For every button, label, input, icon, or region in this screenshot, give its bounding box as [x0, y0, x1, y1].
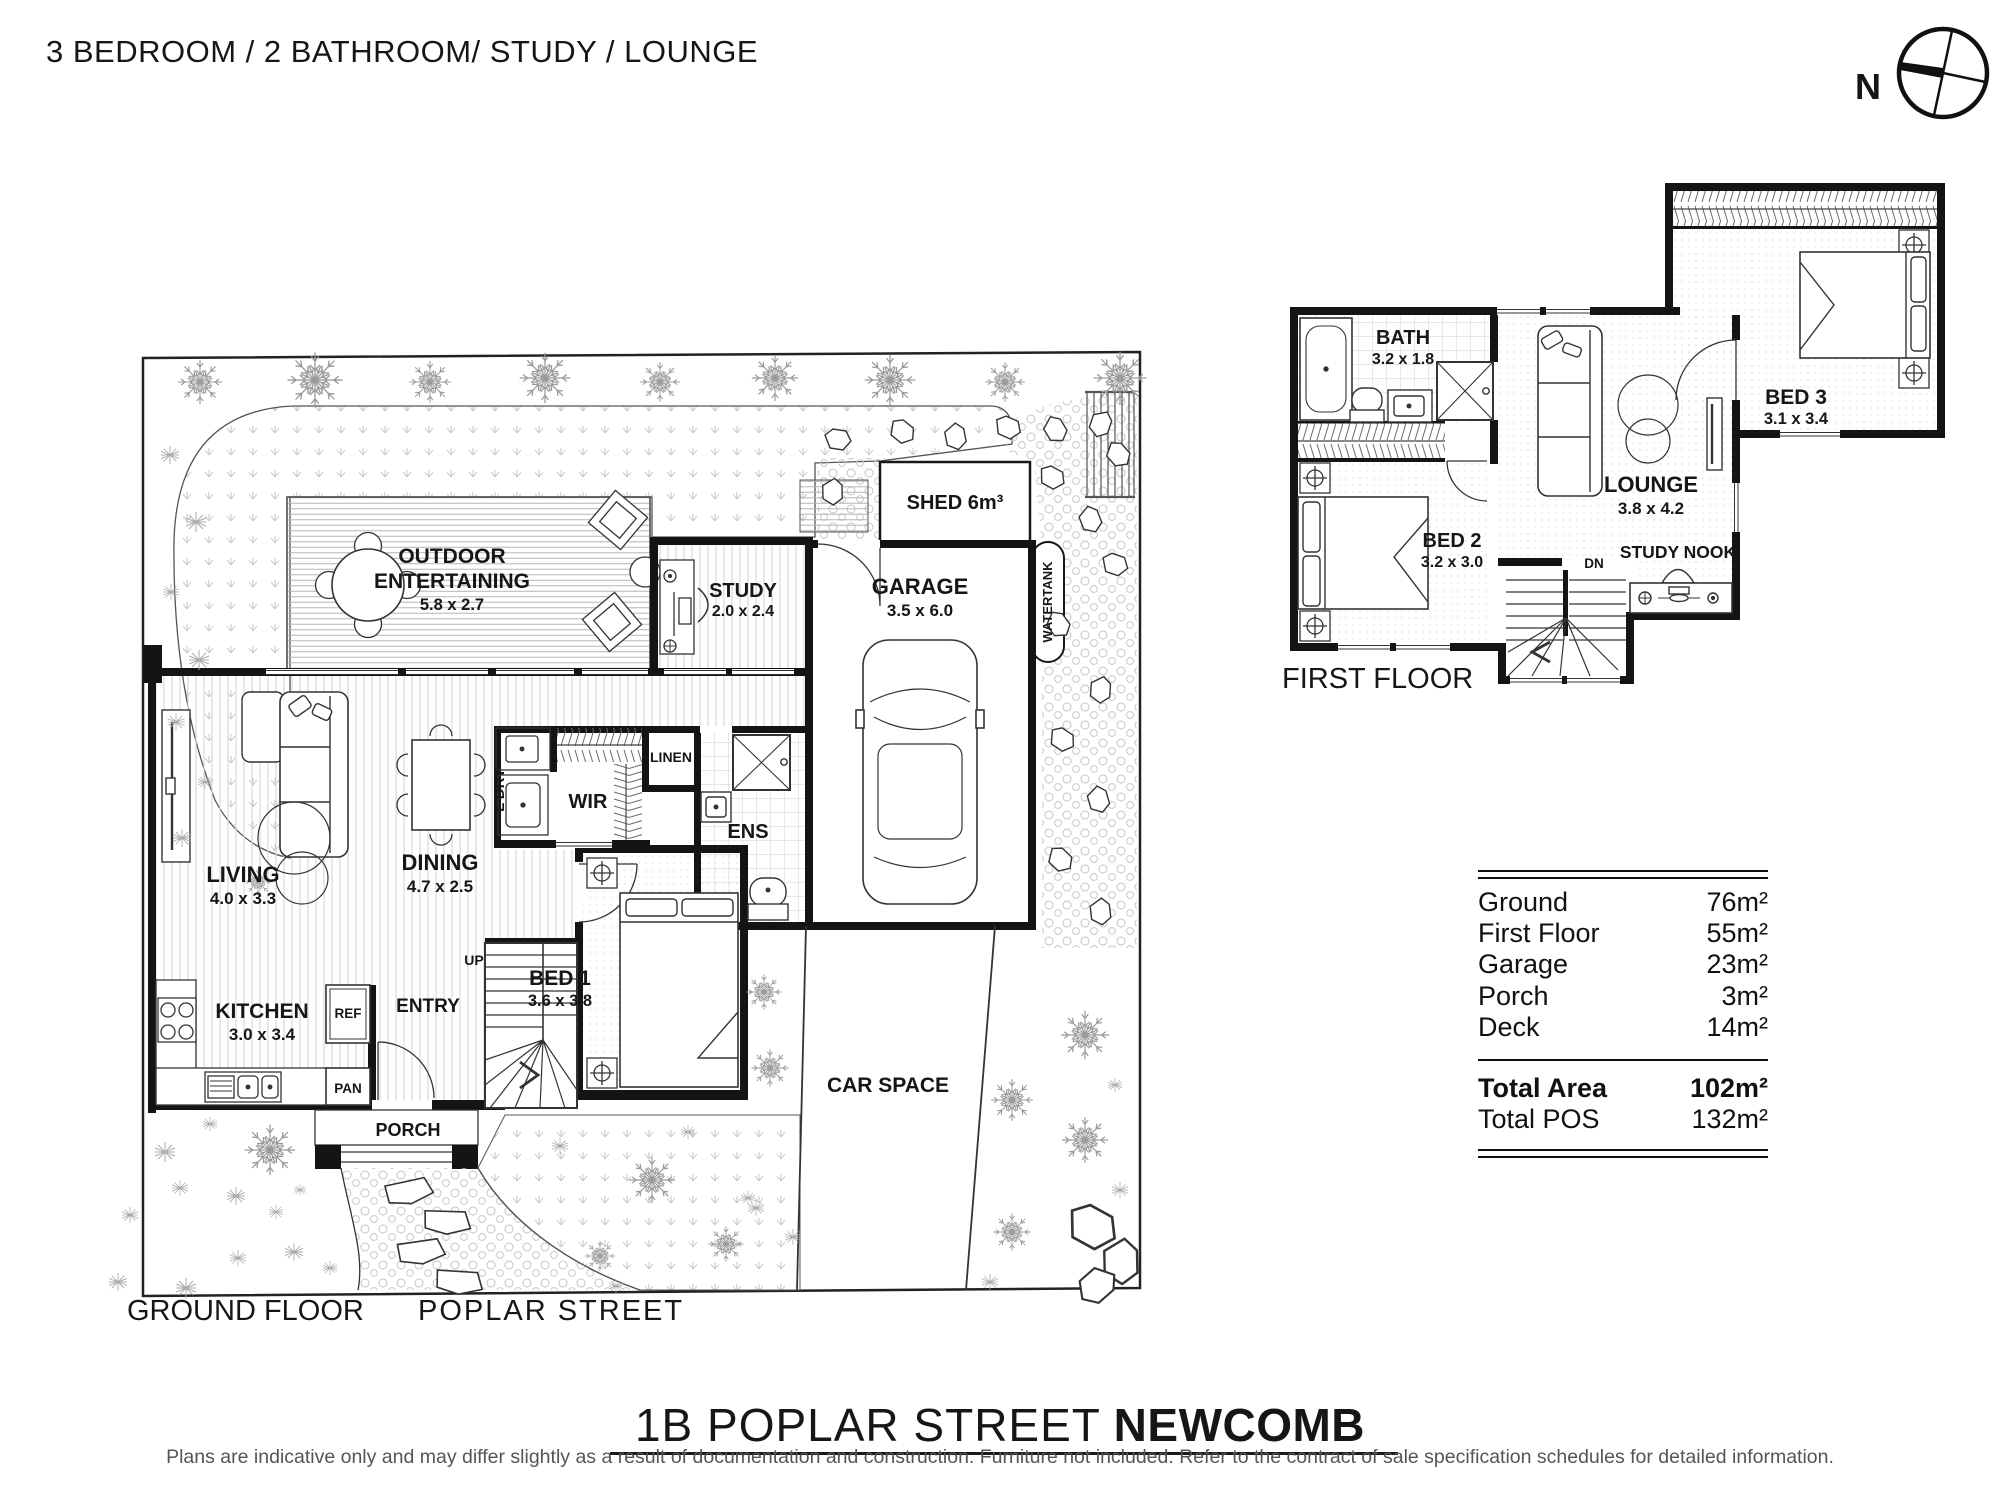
room-dims-kitchen: 3.0 x 3.4: [229, 1025, 296, 1044]
label-up: UP: [464, 952, 483, 968]
room-label-ens: ENS: [727, 821, 768, 843]
room-label-linen: LINEN: [650, 749, 692, 765]
label-porch: PORCH: [375, 1120, 440, 1140]
room-label-garage: GARAGE: [872, 574, 969, 599]
room-label-study: STUDY: [709, 580, 777, 602]
room-dims-living: 4.0 x 3.3: [210, 889, 276, 908]
ground-floor-caption: GROUND FLOOR: [127, 1295, 364, 1327]
room-dims-study: 2.0 x 2.4: [712, 603, 774, 620]
room-dims-outdoor: 5.8 x 2.7: [420, 596, 484, 614]
room-dims-bath: 3.2 x 1.8: [1372, 351, 1434, 368]
address-title: 1B POPLAR STREET NEWCOMB: [0, 1398, 2000, 1452]
table-row: First Floor 55m²: [1478, 918, 1768, 949]
area-label: Garage: [1478, 949, 1568, 980]
room-label-shed: SHED 6m³: [907, 492, 1004, 514]
table-row: Garage 23m²: [1478, 949, 1768, 980]
room-label-dining: DINING: [402, 850, 479, 875]
address-suburb: NEWCOMB: [1114, 1399, 1365, 1451]
room-label-outdoor-2: ENTERTAINING: [374, 570, 530, 593]
table-rule-mid: [1478, 1059, 1768, 1061]
label-car-space: CAR SPACE: [827, 1074, 949, 1097]
room-dims-lounge: 3.8 x 4.2: [1618, 499, 1684, 518]
room-label-bath: BATH: [1376, 327, 1430, 349]
room-label-bed2: BED 2: [1423, 530, 1482, 552]
label-ref: REF: [335, 1006, 362, 1021]
floorplan-drawing: N: [0, 0, 2000, 1500]
room-label-bed1: BED 1: [529, 967, 591, 990]
label-study-nook: STUDY NOOK: [1620, 542, 1737, 562]
area-label: Ground: [1478, 887, 1568, 918]
area-value: 23m²: [1706, 949, 1768, 980]
first-floor-plan: BATH 3.2 x 1.8 BED 2 3.2 x 3.0 LOUNGE 3.…: [1282, 183, 1945, 695]
first-floor-caption: FIRST FLOOR: [1282, 663, 1473, 695]
total-label: Total POS: [1478, 1104, 1600, 1135]
street-caption: POPLAR STREET: [418, 1295, 684, 1327]
room-label-lounge: LOUNGE: [1604, 472, 1698, 497]
disclaimer-text: Plans are indicative only and may differ…: [0, 1446, 2000, 1469]
table-row-total-pos: Total POS 132m²: [1478, 1104, 1768, 1135]
table-row-total-area: Total Area 102m²: [1478, 1073, 1768, 1104]
room-dims-bed1: 3.6 x 3.8: [528, 992, 592, 1010]
area-table: Ground 76m² First Floor 55m² Garage 23m²…: [1478, 870, 1768, 1158]
room-label-bed3: BED 3: [1765, 386, 1827, 409]
address-street: 1B POPLAR STREET: [635, 1399, 1101, 1451]
table-rule-top: [1478, 870, 1768, 879]
floorplan-page: 3 BEDROOM / 2 BATHROOM/ STUDY / LOUNGE: [0, 0, 2000, 1500]
area-value: 76m²: [1706, 887, 1768, 918]
label-dn: DN: [1584, 556, 1604, 571]
table-row: Porch 3m²: [1478, 981, 1768, 1012]
first-stairs: [1506, 570, 1626, 676]
compass-needle-icon: [1900, 59, 1944, 79]
total-value: 132m²: [1691, 1104, 1768, 1135]
total-label: Total Area: [1478, 1073, 1607, 1104]
car: [856, 640, 984, 904]
room-label-ldry: L'DRY: [491, 768, 508, 812]
compass: N: [1855, 21, 1995, 125]
room-dims-garage: 3.5 x 6.0: [887, 601, 953, 620]
ground-floor-plan: OUTDOOR ENTERTAINING 5.8 x 2.7 STUDY 2.0…: [109, 352, 1146, 1327]
area-label: First Floor: [1478, 918, 1600, 949]
room-dims-bed2: 3.2 x 3.0: [1421, 554, 1483, 571]
lounge-floor: [1498, 315, 1732, 612]
stairs-down-arrow-icon: [1532, 642, 1550, 662]
area-value: 14m²: [1706, 1012, 1768, 1043]
area-value: 3m²: [1722, 981, 1769, 1012]
room-dims-dining: 4.7 x 2.5: [407, 877, 473, 896]
room-label-outdoor-1: OUTDOOR: [398, 545, 505, 568]
room-label-kitchen: KITCHEN: [215, 1000, 308, 1023]
table-rule-bottom: [1478, 1149, 1768, 1158]
area-label: Porch: [1478, 981, 1549, 1012]
label-watertank: WATERTANK: [1040, 561, 1055, 643]
area-label: Deck: [1478, 1012, 1540, 1043]
table-row: Ground 76m²: [1478, 887, 1768, 918]
total-value: 102m²: [1690, 1073, 1768, 1104]
room-label-wir: WIR: [569, 791, 608, 813]
room-label-living: LIVING: [206, 862, 279, 887]
label-pan: PAN: [334, 1081, 362, 1096]
compass-north-label: N: [1855, 66, 1881, 107]
room-dims-bed3: 3.1 x 3.4: [1764, 410, 1829, 428]
table-row: Deck 14m²: [1478, 1012, 1768, 1043]
area-value: 55m²: [1706, 918, 1768, 949]
label-entry: ENTRY: [396, 996, 460, 1017]
